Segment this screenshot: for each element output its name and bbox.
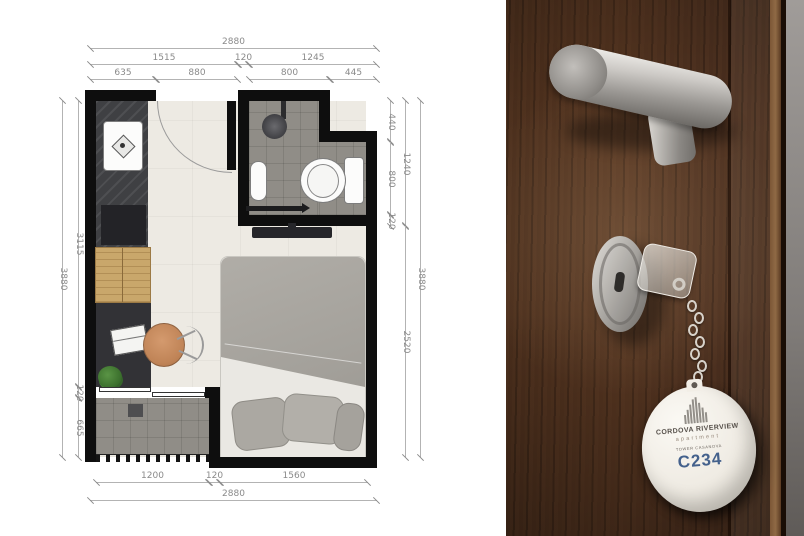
dim-right-3880: 3880	[420, 101, 421, 457]
dim-left-665: 665	[78, 398, 79, 457]
dim-top-total: 2880	[90, 48, 377, 49]
screenshot-canvas: 2880 1515 120 1245 635 880 800 445 1200 …	[0, 0, 804, 536]
dim-bottom-1560: 1560	[220, 482, 368, 483]
dim-top-635: 635	[90, 79, 156, 80]
sliding-door-panel	[152, 392, 205, 397]
key-chain-ring	[688, 324, 698, 336]
dim-top-120: 120	[238, 64, 249, 65]
balcony-floor	[96, 398, 209, 455]
dim-top-445: 445	[330, 79, 377, 80]
wall-segment	[366, 131, 377, 468]
dim-top-1515: 1515	[90, 64, 238, 65]
wash-basin	[250, 161, 267, 201]
fob-tower-logo-icon	[682, 396, 710, 424]
sliding-door-track	[246, 206, 302, 211]
dim-bottom-120: 120	[209, 482, 220, 483]
toilet-tank	[344, 157, 364, 204]
wall-strip	[786, 0, 804, 536]
door-edge	[770, 0, 781, 536]
key-chain-ring	[687, 300, 697, 312]
fob-unit-number: C234	[677, 449, 723, 473]
dim-bottom-1200: 1200	[96, 482, 209, 483]
fob-apartment-text: apartment	[676, 433, 721, 443]
key-head-hole	[671, 277, 686, 292]
dim-right-120: 120	[390, 215, 391, 226]
dim-left-3115: 3115	[78, 101, 79, 387]
bed	[220, 256, 366, 457]
wall-segment	[238, 215, 377, 226]
cabinet-divider	[122, 248, 123, 302]
key-chain-ring	[694, 312, 704, 324]
fob-neck	[686, 378, 703, 391]
sliding-door-arrow-icon	[302, 203, 310, 213]
tv-console	[252, 227, 332, 238]
sink-drain	[120, 143, 125, 148]
dim-right-2520: 2520	[405, 226, 406, 457]
dim-right-1240: 1240	[405, 101, 406, 226]
key-chain-ring	[695, 336, 705, 348]
chair-base	[168, 326, 204, 364]
blanket-roll	[332, 401, 366, 452]
plant	[98, 366, 122, 388]
shower-head	[262, 114, 287, 139]
balcony-drain	[128, 404, 143, 417]
wood-cabinet-table	[95, 247, 151, 303]
wall-segment	[319, 90, 330, 142]
toilet-seat	[307, 164, 339, 198]
fob-neck-hole	[691, 382, 698, 389]
dim-top-800: 800	[249, 79, 330, 80]
dim-right-440: 440	[390, 101, 391, 142]
dim-left-3880: 3880	[62, 101, 63, 457]
wall-segment	[238, 90, 330, 101]
sliding-door-panel	[99, 387, 151, 392]
balcony-railing	[96, 454, 209, 462]
dim-top-1245: 1245	[249, 64, 377, 65]
floor-plan: 2880 1515 120 1245 635 880 800 445 1200 …	[0, 0, 500, 536]
dim-right-800: 800	[390, 142, 391, 215]
wall-segment	[209, 457, 377, 468]
dim-top-880: 880	[156, 79, 238, 80]
wall-segment	[209, 387, 220, 468]
cooktop	[101, 205, 146, 245]
key-chain-ring	[690, 348, 700, 360]
dim-bottom-total: 2880	[90, 500, 377, 501]
tv-mount	[288, 223, 296, 228]
